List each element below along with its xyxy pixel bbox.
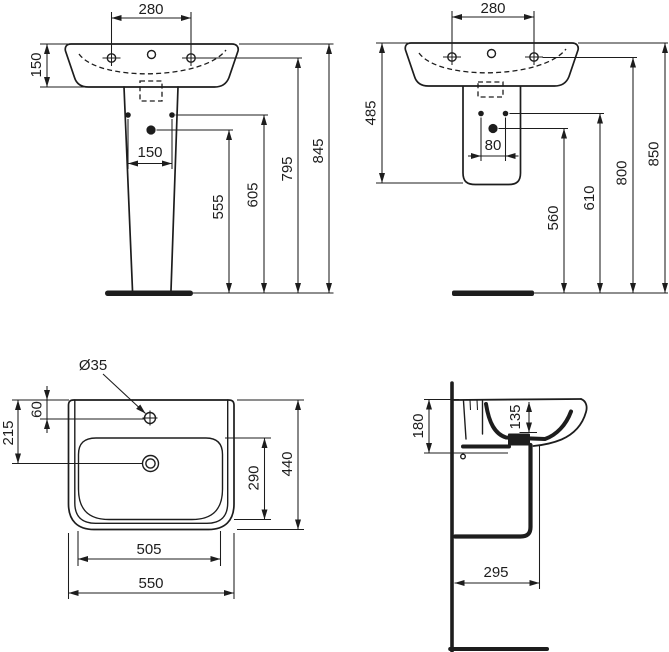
bowl-dashed-outline [419,49,566,73]
outlet-dot [146,125,155,134]
leader-lines [499,43,669,293]
dim-295-projection: 295 [483,564,508,581]
dimension-apron-height: 180 [410,400,429,454]
view-front-with-pedestal: 280 150 150 555 [28,1,334,296]
dim-485-basin-semi-height: 485 [363,100,380,125]
tap-hole-right [182,12,200,66]
dim-80-fixing-centres: 80 [485,137,502,154]
trap-dashed-outline [140,81,162,101]
dim-280-tap-centres: 280 [480,0,505,17]
fixing-hole-dot-left [478,111,484,117]
dim-560-outlet-height: 560 [545,205,562,230]
dim-215-outlet-offset: 215 [0,420,17,445]
dim-280-tap-centres: 280 [138,1,163,18]
leader-lines [157,44,334,293]
wall-fixing-hole [461,454,466,459]
fixing-hole-dot-right [169,112,175,118]
floor-band [452,291,534,297]
fixing-hole-dot-left [125,112,131,118]
dim-180-apron-height: 180 [410,413,427,438]
dim-505-bowl-width: 505 [136,541,161,558]
dimension-basin-semi-height: 485 [363,43,464,183]
dim-795-taphole-height: 795 [279,156,296,181]
bowl-outline [79,438,223,520]
dim-135-bowl-inner-depth: 135 [507,404,524,429]
view-plan: Ø35 60 215 290 440 [0,357,304,599]
outlet-dot [488,124,497,133]
dimension-outlet-offset: 215 [0,400,142,464]
dimension-rim-depth: 150 [28,44,88,87]
dimension-bowl-depth: 290 [225,438,271,520]
dim-850-overall-height: 850 [646,141,663,166]
dim-605-fixing-height: 605 [245,182,262,207]
dim-dia35-taphole-diameter: Ø35 [79,357,107,374]
drain-outlet [143,456,159,472]
dim-555-outlet-height: 555 [210,194,227,219]
overflow-hole [488,50,496,58]
semi-pedestal-outline [463,87,521,185]
tap-hole-left [103,12,121,66]
washbasin-technical-drawing: 280 150 150 555 [0,0,669,652]
dim-150-rim-depth: 150 [28,52,45,77]
view-side-section: 180 135 295 [410,383,587,651]
dimension-bowl-inner-depth: 135 [507,402,537,433]
dimension-bowl-width: 505 [78,531,221,566]
tap-hole-right [525,11,543,65]
pedestal-base [105,291,193,297]
dim-550-overall-width: 550 [138,575,163,592]
dim-845-overall-height: 845 [310,138,327,163]
taphole-diameter-leader [103,374,146,414]
trap-dashed-outline [478,82,503,97]
drain-trap-block [508,434,530,446]
bowl-dashed-outline [79,50,226,74]
bracket-outline [455,445,531,537]
view-front-with-semi-pedestal: 280 485 80 560 [363,0,669,296]
pedestal-outline [124,87,178,291]
overflow-hole [148,51,156,59]
dim-60-taphole-offset: 60 [29,401,46,418]
dim-290-bowl-depth: 290 [246,465,263,490]
dimension-projection: 295 [455,446,540,589]
tap-hole-left [443,11,461,65]
dim-610-fixing-height: 610 [581,185,598,210]
dimension-overall-depth: 440 [237,400,304,530]
fixing-hole-dot-right [503,111,509,117]
dim-150-fixing-centres: 150 [137,144,162,161]
dim-800-taphole-height: 800 [614,160,631,185]
dim-440-overall-depth: 440 [279,451,296,476]
